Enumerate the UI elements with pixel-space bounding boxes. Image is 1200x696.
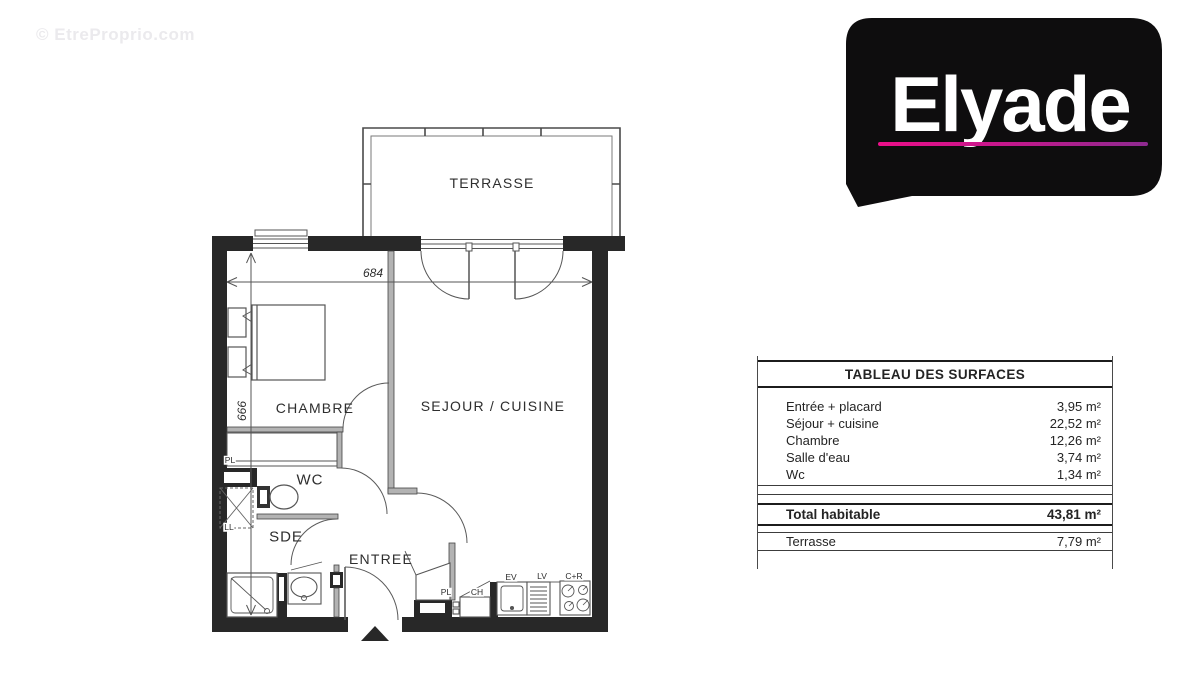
row-label: Salle d'eau (786, 449, 850, 466)
row-value: 22,52 m² (1050, 415, 1101, 432)
bed (228, 305, 325, 380)
placard-entree-label: PL (440, 588, 452, 597)
chambre-window (253, 230, 308, 248)
width-dimension: 684 (360, 267, 386, 279)
dishwasher (527, 582, 560, 615)
page-canvas: { "watermark": { "text": "© EtreProprio.… (0, 0, 1200, 696)
logo-underline (878, 142, 1148, 146)
terrasse-label: TERRASSE (449, 176, 534, 190)
terrace-label: Terrasse (786, 533, 836, 550)
kitchen-sink (497, 582, 527, 615)
logo-brand-text: Elyade (870, 67, 1150, 145)
row-value: 3,95 m² (1057, 398, 1101, 415)
sink-label: EV (504, 573, 517, 582)
watermark: © EtreProprio.com (36, 25, 195, 45)
toilet (257, 485, 298, 509)
wc-label: WC (297, 473, 324, 488)
terrace-value: 7,79 m² (1057, 533, 1101, 550)
water-heater-label: CH (470, 588, 484, 597)
row-label: Séjour + cuisine (786, 415, 879, 432)
surface-table-title: TABLEAU DES SURFACES (758, 362, 1112, 388)
sejour-cuisine-label: SEJOUR / CUISINE (421, 399, 565, 413)
total-row: Total habitable 43,81 m² (758, 505, 1112, 526)
shower (227, 573, 277, 617)
table-row: Salle d'eau 3,74 m² (758, 449, 1112, 466)
row-label: Chambre (786, 432, 839, 449)
table-spacer (758, 486, 1112, 495)
total-label: Total habitable (786, 505, 880, 524)
placard-wc-label: PL (224, 456, 236, 465)
entree-label: ENTREE (349, 552, 413, 566)
entrance-arrow (361, 626, 389, 641)
cooktop-fridge-label: C+R (564, 572, 583, 581)
row-label: Wc (786, 466, 805, 483)
cooktop-fridge (560, 581, 590, 615)
row-value: 3,74 m² (1057, 449, 1101, 466)
sde-label: SDE (269, 530, 303, 545)
washbasin (288, 562, 322, 604)
table-row: Chambre 12,26 m² (758, 432, 1112, 449)
table-row: Entrée + placard 3,95 m² (758, 398, 1112, 415)
table-spacer (758, 526, 1112, 533)
dishwasher-label: LV (536, 572, 548, 581)
row-value: 1,34 m² (1057, 466, 1101, 483)
wc-closet-strip (227, 433, 337, 466)
terrasse-french-door (421, 240, 563, 300)
terrace-row: Terrasse 7,79 m² (758, 533, 1112, 551)
row-value: 12,26 m² (1050, 432, 1101, 449)
surface-table-rows: Entrée + placard 3,95 m² Séjour + cuisin… (758, 388, 1112, 486)
surface-table: TABLEAU DES SURFACES Entrée + placard 3,… (757, 356, 1113, 569)
row-label: Entrée + placard (786, 398, 882, 415)
table-row: Wc 1,34 m² (758, 466, 1112, 483)
chambre-label: CHAMBRE (276, 401, 354, 415)
table-spacer (758, 495, 1112, 505)
washing-machine-label: LL (223, 523, 234, 532)
height-dimension: 666 (236, 398, 248, 424)
table-row: Séjour + cuisine 22,52 m² (758, 415, 1112, 432)
total-value: 43,81 m² (1047, 505, 1101, 524)
